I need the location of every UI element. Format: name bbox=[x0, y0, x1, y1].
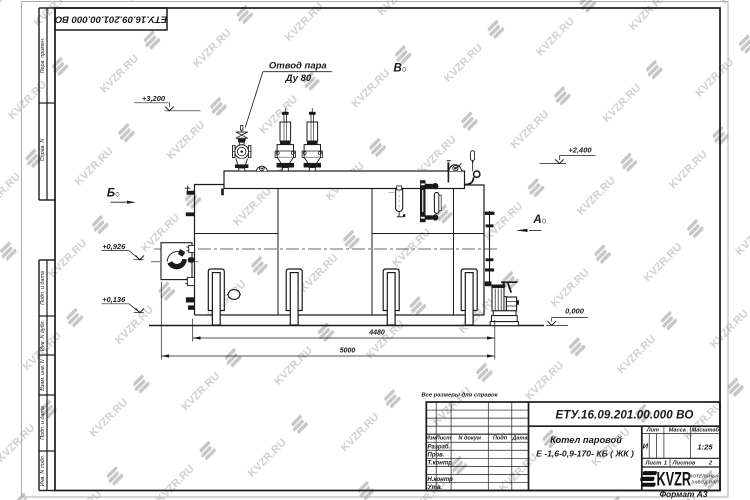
svg-text:Ду 80: Ду 80 bbox=[285, 73, 312, 84]
svg-text:Формат А3: Формат А3 bbox=[660, 489, 708, 499]
svg-text:Листов: Листов bbox=[672, 461, 696, 467]
svg-text:KVZR: KVZR bbox=[657, 469, 692, 490]
svg-text:Е -1,6-0,9-170- КБ ( ЖК ): Е -1,6-0,9-170- КБ ( ЖК ) bbox=[536, 448, 634, 458]
svg-text:ЗАВОД РЭП: ЗАВОД РЭП bbox=[691, 480, 719, 485]
svg-text:1: 1 bbox=[664, 461, 667, 467]
svg-text:Подп. и дата: Подп. и дата bbox=[40, 271, 46, 305]
svg-text:Утв.: Утв. bbox=[428, 485, 443, 491]
svg-text:Б: Б bbox=[107, 187, 115, 199]
svg-text:Котел паровой: Котел паровой bbox=[550, 435, 622, 445]
svg-text:N докум: N докум bbox=[458, 436, 481, 442]
svg-text:Справ. N: Справ. N bbox=[40, 139, 46, 162]
svg-text:Лист: Лист bbox=[435, 436, 451, 442]
svg-text:+2,400: +2,400 bbox=[568, 146, 592, 155]
svg-text:5000: 5000 bbox=[340, 347, 356, 354]
svg-text:Лит: Лит bbox=[646, 428, 659, 434]
svg-text:Дата: Дата bbox=[511, 436, 527, 442]
svg-text:И: И bbox=[643, 442, 649, 451]
svg-text:Разраб.: Разраб. bbox=[428, 444, 451, 451]
svg-text:Подп: Подп bbox=[493, 436, 508, 442]
svg-text:+3,200: +3,200 bbox=[142, 94, 166, 103]
svg-text:Все размеры для справок: Все размеры для справок bbox=[421, 393, 498, 399]
svg-text:0,000: 0,000 bbox=[565, 306, 585, 315]
svg-text:Пров.: Пров. bbox=[428, 453, 445, 459]
svg-text:Отвод пара: Отвод пара bbox=[269, 61, 327, 72]
svg-text:Инв. N подл.: Инв. N подл. bbox=[40, 455, 46, 487]
svg-text:+0,136: +0,136 bbox=[102, 295, 126, 304]
svg-text:4480: 4480 bbox=[368, 329, 385, 336]
svg-text:Взам. инв. N: Взам. инв. N bbox=[40, 359, 46, 391]
svg-text:+0,926: +0,926 bbox=[102, 242, 126, 251]
svg-text:1:25: 1:25 bbox=[697, 443, 713, 452]
svg-text:Лист: Лист bbox=[645, 461, 662, 467]
svg-text:КОТЕЛЬНЫЙ: КОТЕЛЬНЫЙ bbox=[690, 471, 721, 478]
svg-text:ЕТУ.16.09.201.00.000 ВО: ЕТУ.16.09.201.00.000 ВО bbox=[556, 409, 694, 422]
svg-text:А: А bbox=[532, 214, 541, 226]
svg-text:В: В bbox=[394, 63, 402, 75]
svg-text:Масса: Масса bbox=[669, 428, 686, 434]
svg-text:Т.контр: Т.контр bbox=[428, 461, 453, 467]
svg-text:Подп. и дата: Подп. и дата bbox=[40, 406, 46, 440]
svg-text:Н.контр: Н.контр bbox=[428, 477, 454, 483]
svg-text:Перв. примен.: Перв. примен. bbox=[40, 38, 46, 74]
svg-text:ЕТУ.16.09.201.00.000 ВО: ЕТУ.16.09.201.00.000 ВО bbox=[54, 13, 167, 24]
svg-text:Масштаб: Масштаб bbox=[692, 427, 720, 434]
svg-text:Инв. N дубл.: Инв. N дубл. bbox=[40, 320, 46, 351]
